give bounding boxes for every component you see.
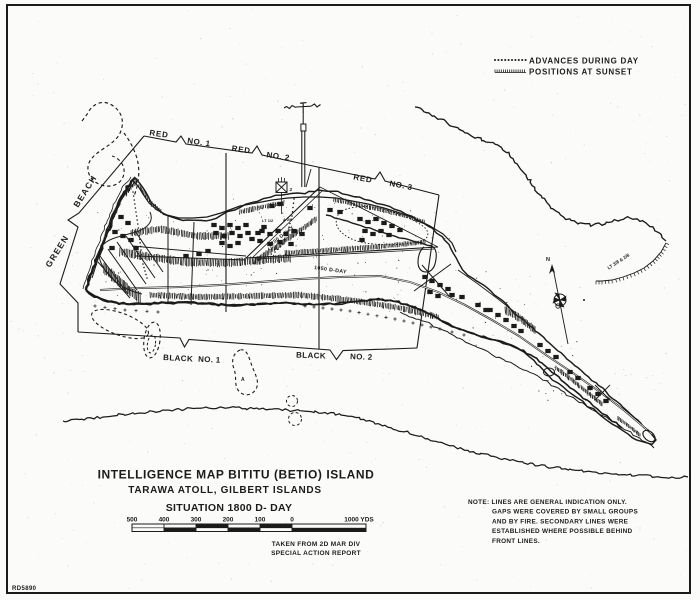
svg-text:RED: RED — [149, 128, 169, 140]
svg-text:SITUATION 1800 D- DAY: SITUATION 1800 D- DAY — [166, 502, 293, 514]
svg-text:NOTE: LINES ARE GENERAL IN: NOTE: LINES ARE GENERAL INDICATION ONLY. — [468, 499, 627, 506]
svg-text:ESTABLISHED WHERE POSSIBLE: ESTABLISHED WHERE POSSIBLE BEHIND — [492, 528, 633, 535]
svg-text:RED: RED — [231, 144, 251, 156]
svg-text:NO. 3: NO. 3 — [389, 179, 414, 192]
svg-text:RED: RED — [353, 172, 374, 185]
svg-text:A 2/2: A 2/2 — [283, 217, 293, 222]
svg-text:A: A — [241, 377, 245, 383]
svg-text:LT 1/2: LT 1/2 — [268, 246, 280, 251]
svg-text:1000 YDS: 1000 YDS — [344, 517, 374, 524]
svg-text:POSITIONS AT SUNSET: POSITIONS AT SUNSET — [529, 68, 633, 77]
svg-text:RD5890: RD5890 — [12, 586, 37, 592]
svg-text:BLACK: BLACK — [163, 353, 193, 364]
svg-text:GAPS WERE COVERED BY SMALL: GAPS WERE COVERED BY SMALL GROUPS — [492, 509, 638, 516]
svg-text:AND BY FIRE. SECONDARY LIN: AND BY FIRE. SECONDARY LINES WERE — [492, 518, 629, 525]
svg-text:2: 2 — [290, 187, 293, 193]
svg-text:ADVANCES DURING DAY: ADVANCES DURING DAY — [529, 57, 639, 66]
svg-text:BLACK: BLACK — [296, 351, 326, 361]
svg-text:LT 1/2: LT 1/2 — [262, 218, 274, 223]
svg-text:BEACH: BEACH — [71, 173, 99, 209]
svg-text:400: 400 — [159, 517, 170, 524]
svg-text:0: 0 — [290, 517, 294, 524]
svg-text:NO. 2: NO. 2 — [266, 150, 290, 162]
svg-text:INTELLIGENCE MAP BITITU (BE: INTELLIGENCE MAP BITITU (BETIO) ISLAND — [98, 468, 375, 482]
svg-text:200: 200 — [223, 517, 234, 524]
svg-text:N: N — [546, 257, 550, 263]
svg-text:TAKEN FROM 2D MAR DIV: TAKEN FROM 2D MAR DIV — [272, 541, 361, 548]
svg-text:100: 100 — [255, 517, 266, 524]
svg-text:NO. 1: NO. 1 — [187, 136, 211, 148]
svg-text:FRONT LINES.: FRONT LINES. — [492, 538, 540, 545]
svg-text:NO. 2: NO. 2 — [350, 352, 373, 362]
svg-text:500: 500 — [127, 517, 138, 524]
svg-text:TARAWA ATOLL, GILBERT ISLAND: TARAWA ATOLL, GILBERT ISLANDS — [128, 485, 321, 496]
svg-text:NO. 1: NO. 1 — [198, 355, 221, 365]
svg-text:LT 3/8 & 2/8: LT 3/8 & 2/8 — [607, 252, 631, 270]
svg-text:SPECIAL ACTION REPORT: SPECIAL ACTION REPORT — [271, 550, 361, 557]
svg-text:300: 300 — [191, 517, 202, 524]
